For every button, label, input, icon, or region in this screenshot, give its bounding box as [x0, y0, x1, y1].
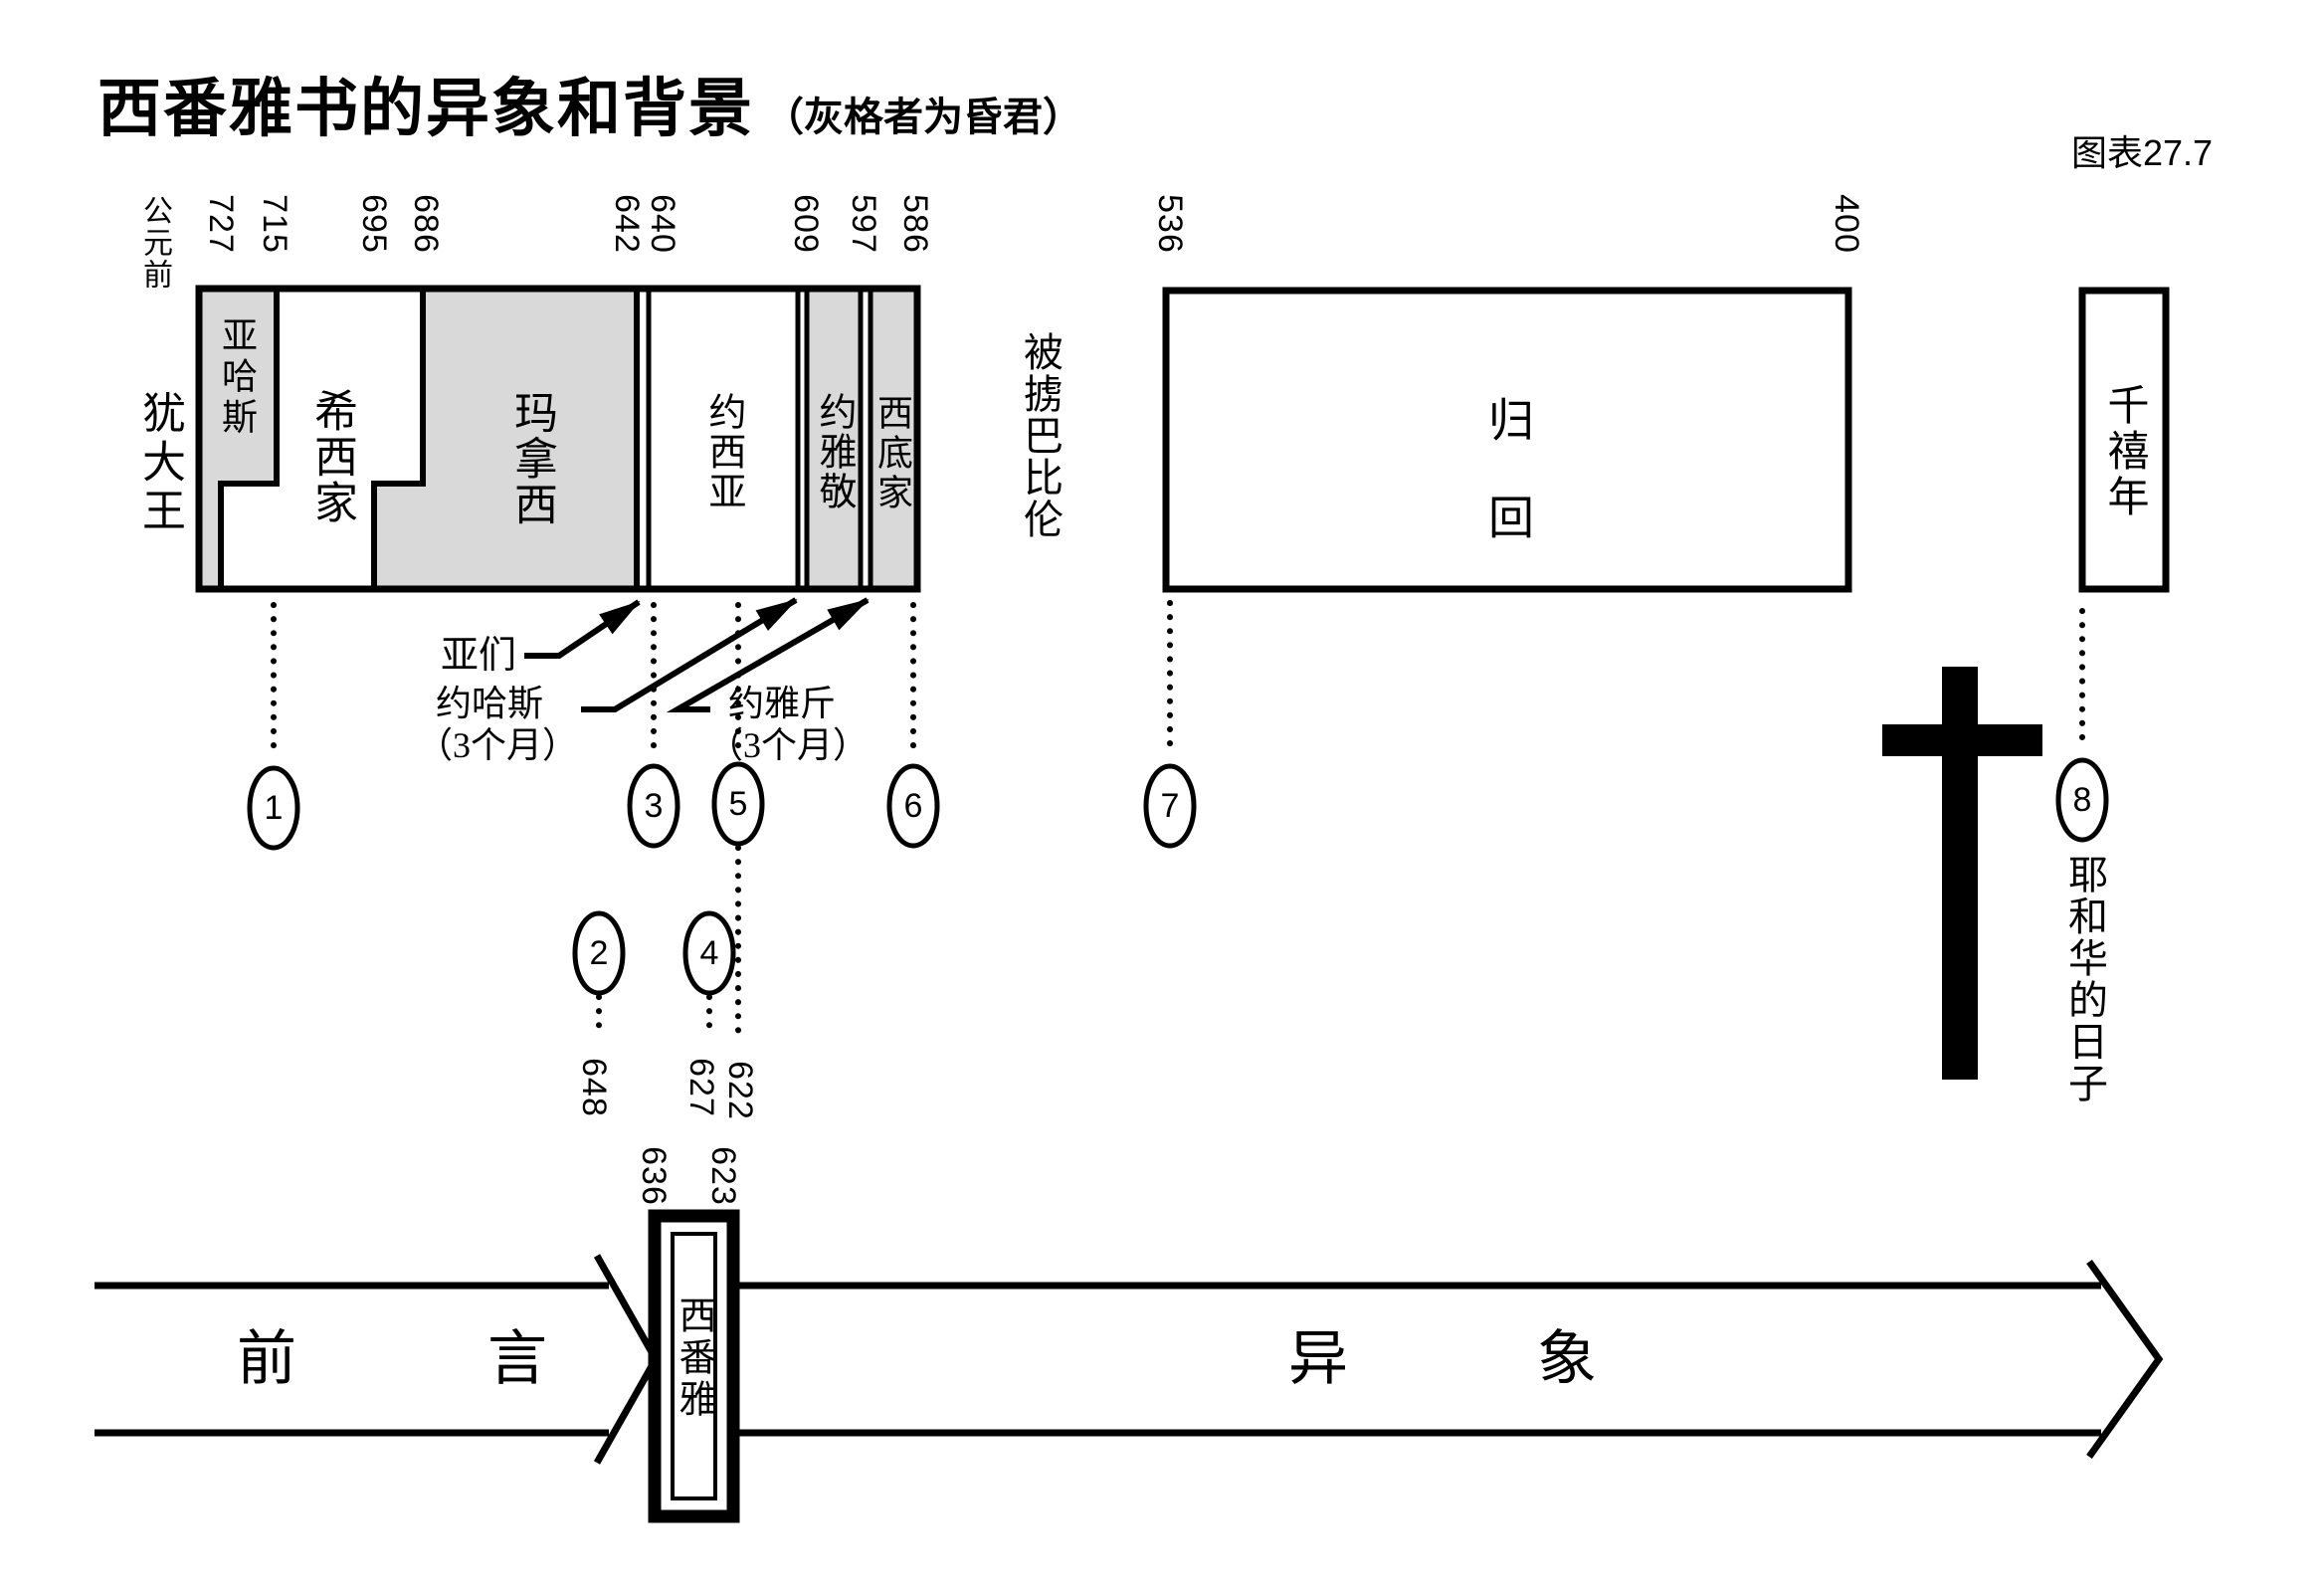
king-jehoiachin-label: 约雅斤 [728, 686, 836, 721]
year-400: 400 [1830, 194, 1863, 254]
king-josiah-label: 约西亚 [704, 392, 742, 511]
marker-7: 7 [1161, 789, 1180, 823]
diagram-page: 西番雅书的异象和背景 （灰格者为昏君） 图表27.7 公元前 727 715 6… [0, 0, 2324, 1594]
marker-2: 2 [590, 936, 609, 970]
king-jehoahaz-label: 约哈斯 [436, 686, 543, 721]
return-label: 归回 [1484, 396, 1530, 591]
year-695: 695 [357, 194, 391, 254]
marker-1: 1 [265, 791, 284, 825]
year-586: 586 [898, 194, 932, 254]
jehoahaz-duration-label: （3个月） [417, 727, 578, 763]
figure-label: 图表27.7 [2071, 135, 2213, 171]
page-title-main: 西番雅书的异象和背景 [97, 58, 754, 149]
amon-arrow [524, 602, 639, 656]
year-609: 609 [789, 194, 823, 254]
year-627: 627 [684, 1058, 718, 1117]
year-536: 536 [1153, 194, 1187, 254]
year-623: 623 [706, 1146, 740, 1206]
marker-3: 3 [645, 789, 664, 823]
era-label: 公元前 [139, 195, 169, 291]
year-648: 648 [577, 1058, 611, 1117]
king-jehoiakim-label: 约雅敬 [815, 392, 853, 511]
exile-label: 被掳巴比伦 [1020, 331, 1060, 540]
band-book-label: 西番雅 [675, 1295, 712, 1421]
king-amon-label: 亚们 [441, 637, 516, 675]
band-intro-label: 前言 [237, 1329, 738, 1389]
year-636: 636 [637, 1146, 671, 1206]
king-zedekiah-label: 西底家 [874, 394, 910, 513]
page-title: 西番雅书的异象和背景 （灰格者为昏君） [97, 58, 1082, 149]
marker-4: 4 [700, 936, 719, 970]
marker-6: 6 [904, 789, 923, 823]
marker-5: 5 [729, 787, 748, 821]
king-manasseh-label: 玛拿西 [509, 390, 553, 527]
year-686: 686 [409, 194, 443, 254]
year-715: 715 [258, 194, 291, 254]
band-visions-label: 异象 [1288, 1329, 1786, 1389]
millennium-label: 千禧年 [2103, 383, 2145, 520]
year-727: 727 [204, 194, 238, 254]
king-ahaz-label: 亚哈斯 [219, 316, 255, 439]
page-title-note: （灰格者为昏君） [764, 85, 1082, 142]
band-arrowhead [2089, 1262, 2159, 1457]
day-of-the-lord-label: 耶和华的日子 [2064, 854, 2104, 1104]
marker-8: 8 [2073, 783, 2092, 817]
year-622: 622 [723, 1061, 757, 1120]
jehoiachin-duration-label: （3个月） [707, 727, 869, 763]
cross-icon [1882, 667, 2042, 1080]
year-597: 597 [847, 194, 880, 254]
king-hezekiah-label: 希西家 [309, 388, 353, 525]
year-642: 642 [610, 194, 644, 254]
year-640: 640 [646, 194, 679, 254]
kings-axis-label: 犹大王 [137, 390, 181, 536]
